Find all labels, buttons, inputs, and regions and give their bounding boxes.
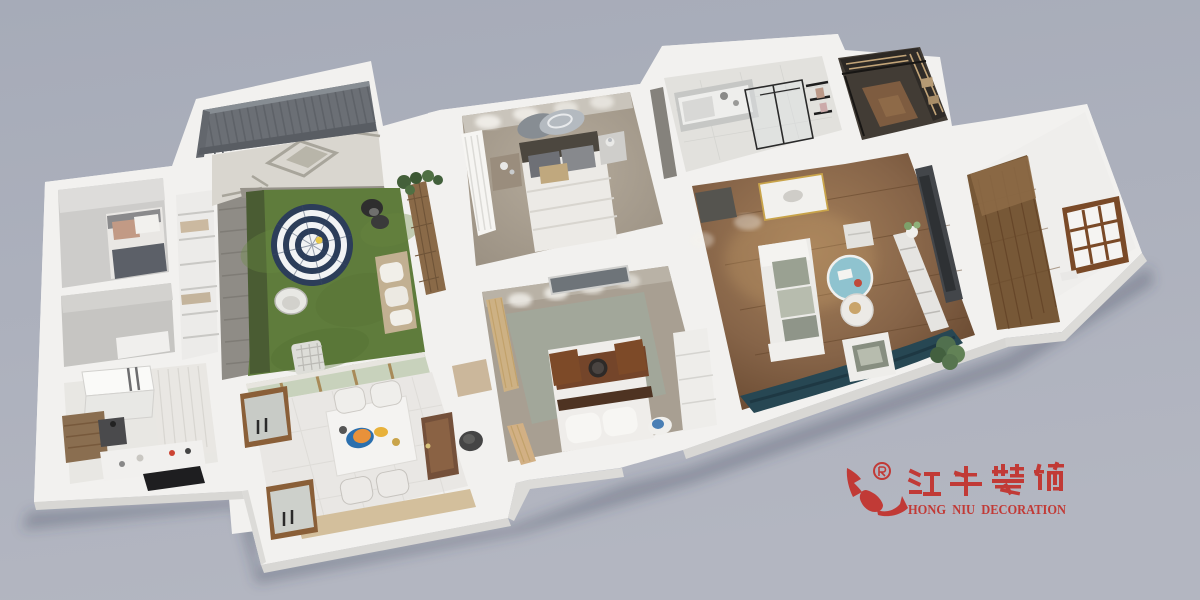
svg-text:HONG NIU DECORATION: HONG NIU DECORATION: [908, 502, 1066, 517]
